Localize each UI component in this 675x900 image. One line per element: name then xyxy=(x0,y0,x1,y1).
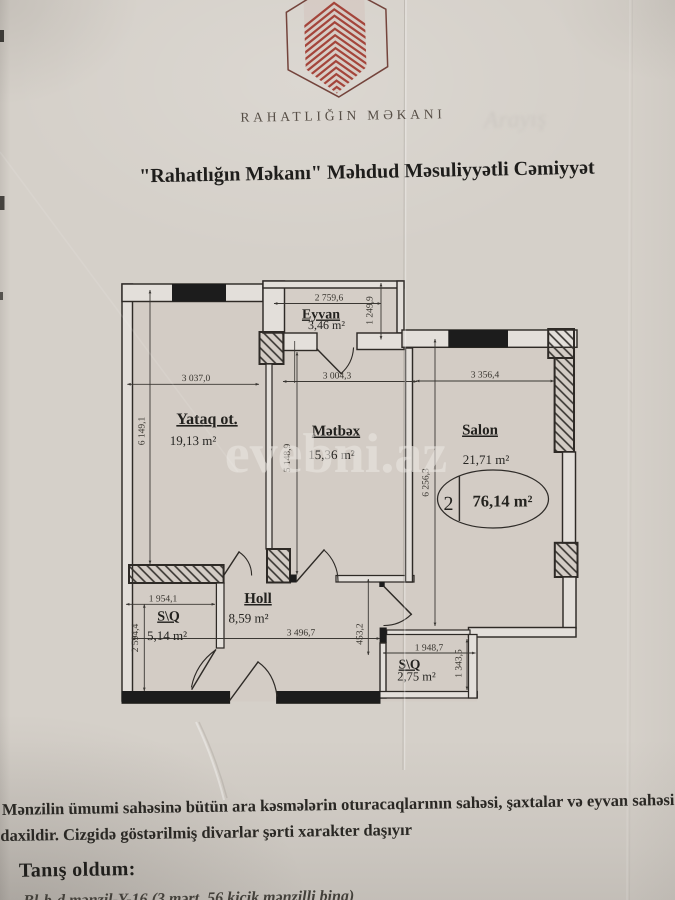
svg-text:S\Q: S\Q xyxy=(157,610,180,625)
svg-text:2: 2 xyxy=(444,493,454,515)
svg-text:3 037,0: 3 037,0 xyxy=(182,374,211,384)
svg-text:6 149,1: 6 149,1 xyxy=(138,417,148,446)
svg-text:"Rahatlığın Məkanı" Məhdud Məs: "Rahatlığın Məkanı" Məhdud Məsuliyyətli … xyxy=(139,157,595,188)
svg-text:8,59 m²: 8,59 m² xyxy=(228,611,268,626)
svg-text:Salon: Salon xyxy=(462,423,499,439)
svg-text:3 496,7: 3 496,7 xyxy=(287,629,316,639)
svg-text:19,13 m²: 19,13 m² xyxy=(170,433,217,448)
svg-text:453,2: 453,2 xyxy=(356,623,366,645)
svg-text:3,46 m²: 3,46 m² xyxy=(308,318,345,332)
svg-text:Mənzilin ümumi sahəsinə bütün: Mənzilin ümumi sahəsinə bütün ara kəsməl… xyxy=(2,790,675,819)
svg-text:76,14 m²: 76,14 m² xyxy=(473,492,533,511)
svg-text:Arayış: Arayış xyxy=(481,106,547,134)
svg-text:2 594,4: 2 594,4 xyxy=(131,624,141,653)
svg-text:evebni.az: evebni.az xyxy=(225,423,447,485)
svg-text:1 948,7: 1 948,7 xyxy=(415,644,444,654)
svg-text:Holl: Holl xyxy=(244,591,272,607)
svg-text:Bl-b-d mənzil-Y-16 (3 mərt. 56: Bl-b-d mənzil-Y-16 (3 mərt. 56 kiçik mən… xyxy=(22,888,354,900)
svg-text:21,71 m²: 21,71 m² xyxy=(463,452,510,467)
svg-text:1 343,5: 1 343,5 xyxy=(455,649,465,678)
svg-text:3 004,3: 3 004,3 xyxy=(323,372,352,382)
svg-text:2 759,6: 2 759,6 xyxy=(315,294,344,304)
svg-text:RAHATLIĞIN MƏKANI: RAHATLIĞIN MƏKANI xyxy=(240,106,445,125)
svg-text:1 954,1: 1 954,1 xyxy=(149,595,178,605)
svg-text:Tanış oldum:: Tanış oldum: xyxy=(19,858,136,882)
svg-text:5,14 m²: 5,14 m² xyxy=(147,628,187,643)
svg-text:3 356,4: 3 356,4 xyxy=(471,371,500,381)
svg-text:daxildir. Cizgidə göstərilmiş: daxildir. Cizgidə göstərilmiş divarlar ş… xyxy=(0,820,412,845)
svg-text:1 249,9: 1 249,9 xyxy=(366,296,376,325)
